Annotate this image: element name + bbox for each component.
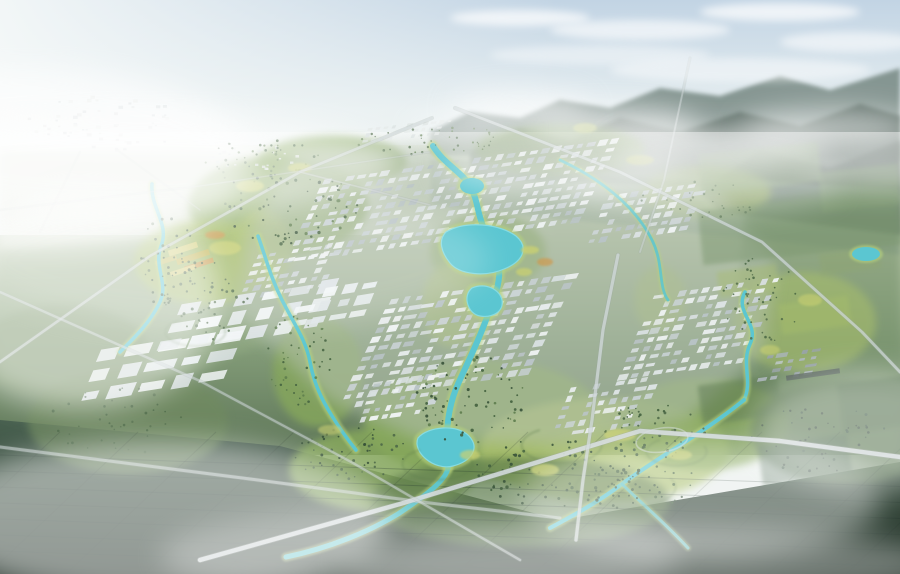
tree: [444, 438, 446, 440]
tree: [764, 336, 767, 339]
tree: [467, 388, 470, 391]
tree: [371, 133, 373, 135]
tree: [621, 427, 623, 429]
tree: [781, 318, 783, 320]
tree: [111, 425, 113, 427]
tree: [475, 404, 478, 407]
tree: [363, 443, 366, 446]
tree: [503, 480, 506, 483]
tree: [657, 409, 659, 411]
tree: [623, 417, 626, 420]
tree: [748, 278, 750, 280]
tree: [475, 356, 478, 359]
tree: [741, 328, 743, 330]
tree: [762, 301, 764, 303]
tree: [470, 429, 473, 432]
tree: [422, 387, 424, 389]
tree: [663, 410, 665, 412]
tree: [424, 407, 427, 410]
tree: [287, 357, 288, 358]
tree: [483, 146, 484, 147]
tree: [772, 292, 774, 294]
tree: [719, 215, 722, 218]
tree: [744, 211, 747, 214]
tree: [745, 293, 748, 296]
tree: [500, 367, 502, 369]
tree: [425, 415, 428, 418]
tree: [322, 349, 325, 352]
tree: [511, 387, 513, 389]
tree: [290, 344, 292, 346]
tree: [329, 369, 331, 371]
tree: [147, 435, 148, 436]
tree: [494, 402, 497, 405]
tree: [323, 438, 325, 440]
tree: [781, 278, 783, 280]
tree: [475, 366, 477, 368]
tree: [124, 406, 126, 408]
tree: [628, 407, 630, 409]
tree: [283, 379, 285, 381]
tree: [157, 404, 159, 406]
tree: [493, 485, 495, 487]
tree: [746, 295, 748, 297]
tree: [689, 413, 691, 415]
tree: [663, 422, 665, 424]
tree: [733, 293, 735, 295]
tree: [314, 376, 317, 379]
tree: [212, 338, 214, 340]
tree: [340, 468, 343, 471]
tree: [505, 446, 507, 448]
tree: [628, 424, 630, 426]
tree: [422, 409, 424, 411]
tree: [71, 441, 74, 444]
tree: [466, 373, 468, 375]
tree: [369, 450, 371, 452]
tree: [446, 374, 448, 376]
tree: [475, 372, 477, 374]
tree: [109, 422, 111, 424]
tree: [752, 277, 755, 280]
tree: [313, 341, 315, 343]
tree: [745, 278, 746, 279]
aerial-city-rendering: [0, 0, 900, 574]
tree: [488, 144, 490, 146]
tree: [637, 425, 639, 427]
tree: [372, 434, 374, 436]
tree: [297, 404, 299, 406]
tree: [105, 414, 107, 416]
tree: [131, 405, 134, 408]
tree: [424, 387, 426, 389]
tree: [723, 289, 725, 291]
tree: [794, 321, 796, 323]
tree: [507, 458, 510, 461]
tree: [456, 424, 458, 426]
tree: [503, 427, 505, 429]
tree: [457, 144, 459, 146]
tree: [774, 340, 775, 341]
tree: [750, 337, 753, 340]
tree: [432, 407, 434, 409]
tree: [67, 442, 69, 444]
cloud: [700, 3, 860, 21]
tree: [282, 361, 284, 363]
tree: [366, 450, 368, 452]
tree: [514, 453, 517, 456]
tree: [493, 415, 495, 417]
tree: [153, 409, 155, 411]
tree: [289, 332, 292, 335]
tree: [371, 444, 373, 446]
tree: [482, 473, 484, 475]
tree: [164, 423, 166, 425]
tree: [332, 464, 334, 466]
tree: [402, 443, 404, 445]
meadow-patch: [521, 246, 539, 254]
tree: [482, 148, 484, 150]
tree: [393, 434, 396, 437]
tree: [321, 328, 323, 330]
tree: [380, 443, 383, 446]
tree: [726, 287, 728, 289]
tree: [364, 464, 366, 466]
tree: [507, 417, 509, 419]
tree: [708, 211, 710, 213]
mist-patch: [560, 159, 840, 211]
tree: [774, 287, 776, 289]
tree: [69, 433, 71, 435]
tree: [505, 485, 508, 488]
tree: [299, 398, 301, 400]
tree: [551, 444, 553, 446]
tree: [605, 430, 607, 432]
tree: [320, 454, 323, 457]
tree: [468, 395, 470, 397]
tree: [307, 400, 310, 403]
tree: [770, 338, 772, 340]
tree: [341, 451, 343, 453]
tree: [451, 418, 454, 421]
tree: [373, 429, 375, 431]
tree: [516, 394, 518, 396]
tree: [518, 454, 521, 457]
tree: [735, 270, 737, 272]
tree: [322, 436, 324, 438]
tree: [769, 337, 771, 339]
tree: [654, 422, 656, 424]
tree: [280, 384, 282, 386]
tree: [510, 400, 513, 403]
tree: [52, 410, 55, 413]
tree: [427, 146, 429, 148]
tree: [440, 422, 443, 425]
tree: [319, 366, 321, 368]
cloud: [550, 20, 730, 40]
tree: [490, 489, 492, 491]
tree: [285, 376, 288, 379]
tree: [510, 418, 512, 420]
tree: [488, 464, 491, 467]
tree: [99, 418, 101, 420]
tree: [425, 402, 428, 405]
tree: [628, 411, 630, 413]
tree: [408, 146, 411, 149]
tree: [180, 416, 182, 418]
tree: [267, 347, 269, 349]
tree: [123, 424, 126, 427]
masterplan-rendering: [0, 0, 900, 574]
tree: [428, 423, 431, 426]
tree: [788, 271, 790, 273]
tree: [321, 361, 323, 363]
tree: [387, 132, 389, 134]
tree: [78, 426, 80, 428]
tree: [702, 428, 704, 430]
tree: [297, 354, 298, 355]
tree: [574, 440, 577, 443]
tree: [618, 412, 621, 415]
tree: [306, 367, 309, 370]
tree: [635, 408, 636, 409]
tree: [313, 449, 314, 450]
tree: [120, 426, 122, 428]
tree: [425, 383, 428, 386]
tree: [626, 416, 628, 418]
tree: [491, 427, 493, 429]
tree: [633, 441, 635, 443]
tree: [329, 358, 331, 360]
tree: [295, 384, 297, 386]
tree: [513, 411, 515, 413]
tree: [569, 441, 571, 443]
tree: [638, 416, 640, 418]
tree: [367, 462, 369, 464]
tree: [757, 284, 759, 286]
tree: [301, 442, 303, 444]
tree: [517, 494, 519, 496]
cloud: [450, 10, 590, 26]
tree: [508, 379, 510, 381]
tree: [374, 461, 376, 463]
tree: [657, 417, 660, 420]
cloud: [610, 58, 870, 82]
tree: [361, 471, 362, 472]
tree: [477, 441, 479, 443]
tree: [513, 419, 516, 422]
tree: [499, 495, 502, 498]
tree: [750, 270, 752, 272]
tree: [750, 321, 752, 323]
tree: [286, 389, 288, 391]
tree: [794, 293, 796, 295]
tree: [746, 268, 749, 271]
tree: [472, 358, 475, 361]
tree: [146, 429, 148, 431]
tree: [460, 411, 463, 414]
tree: [747, 302, 749, 304]
tree: [752, 258, 754, 260]
tree: [271, 379, 273, 381]
tree: [748, 293, 750, 295]
tree: [478, 146, 479, 147]
tree: [727, 318, 729, 320]
tree: [164, 411, 166, 413]
tree: [382, 473, 384, 475]
tree: [520, 408, 523, 411]
tree: [313, 361, 315, 363]
tree: [620, 443, 623, 446]
meadow-patch: [760, 345, 780, 355]
tree: [433, 385, 435, 387]
tree: [131, 421, 133, 423]
tree: [302, 391, 304, 393]
tree: [298, 347, 300, 349]
tree: [745, 263, 747, 265]
tree: [776, 297, 777, 298]
tree: [629, 414, 631, 416]
tree: [372, 437, 375, 440]
tree: [304, 403, 306, 405]
tree: [101, 439, 103, 441]
tree: [374, 466, 376, 468]
tree: [423, 142, 425, 144]
tree: [500, 487, 503, 490]
tree: [476, 464, 478, 466]
tree: [736, 282, 738, 284]
tree: [302, 394, 304, 396]
tree: [766, 318, 768, 320]
tree: [430, 395, 433, 398]
meadow-patch: [537, 258, 553, 266]
tree: [435, 370, 437, 372]
meadow-patch: [516, 268, 532, 276]
tree: [283, 358, 285, 360]
lake: [852, 247, 880, 261]
tree: [752, 274, 754, 276]
tree: [510, 463, 513, 466]
tree: [324, 339, 327, 342]
tree: [528, 469, 530, 471]
tree: [442, 405, 445, 408]
tree: [631, 412, 633, 414]
tree: [446, 400, 448, 402]
tree: [568, 446, 570, 448]
tree: [57, 430, 60, 433]
tree: [461, 431, 463, 433]
tree: [438, 421, 441, 424]
tree: [435, 414, 437, 416]
tree: [113, 429, 115, 431]
tree: [358, 427, 360, 429]
tree: [149, 425, 151, 427]
tree: [434, 396, 436, 398]
tree: [283, 367, 286, 370]
tree: [731, 214, 732, 215]
tree: [338, 436, 340, 438]
tree: [282, 352, 284, 354]
tree: [497, 374, 499, 376]
meadow-patch: [318, 425, 342, 435]
tree: [454, 387, 457, 390]
tree: [442, 412, 444, 414]
tree: [744, 321, 747, 324]
tree: [514, 408, 517, 411]
tree: [620, 409, 622, 411]
tree: [447, 388, 449, 390]
tree: [689, 214, 692, 217]
tree: [769, 275, 771, 277]
tree: [638, 411, 640, 413]
tree: [144, 412, 147, 415]
tree: [485, 405, 487, 407]
tree: [321, 337, 322, 338]
tree: [375, 136, 376, 137]
tree: [275, 385, 276, 386]
tree: [293, 392, 295, 394]
tree: [762, 332, 764, 334]
tree: [758, 298, 760, 300]
tree: [153, 393, 156, 396]
tree: [441, 362, 444, 365]
tree: [309, 345, 311, 347]
tree: [747, 260, 749, 262]
tree: [307, 441, 309, 443]
tree: [463, 150, 464, 151]
tree: [481, 369, 484, 372]
tree: [436, 365, 438, 367]
tree: [442, 420, 444, 422]
meadow-patch: [798, 294, 822, 306]
tree: [739, 310, 741, 312]
mist-patch: [410, 116, 530, 144]
tree: [453, 148, 455, 150]
tree: [490, 357, 492, 359]
tree: [460, 433, 463, 436]
tree: [500, 378, 502, 380]
tree: [368, 445, 371, 448]
tree: [769, 299, 771, 301]
tree: [416, 391, 419, 394]
tree: [484, 390, 486, 392]
tree: [487, 401, 489, 403]
tree: [519, 487, 521, 489]
tree: [667, 405, 669, 407]
tree: [567, 441, 569, 443]
tree: [389, 149, 391, 151]
tree: [426, 419, 428, 421]
tree: [522, 387, 524, 389]
tree: [465, 377, 467, 379]
tree: [313, 332, 315, 334]
tree: [702, 216, 704, 218]
tree: [435, 144, 436, 145]
tree: [764, 314, 766, 316]
tree: [464, 405, 466, 407]
tree: [643, 437, 645, 439]
tree: [510, 484, 512, 486]
tree: [652, 437, 654, 439]
tree: [734, 307, 737, 310]
tree: [395, 445, 398, 448]
tree: [391, 448, 394, 451]
